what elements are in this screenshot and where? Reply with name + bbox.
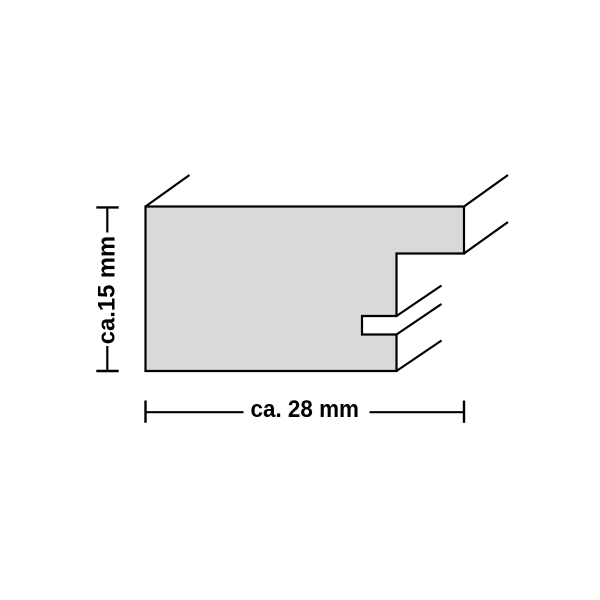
svg-text:ca.15 mm: ca.15 mm	[94, 236, 121, 344]
svg-text:ca. 28 mm: ca. 28 mm	[251, 396, 359, 423]
